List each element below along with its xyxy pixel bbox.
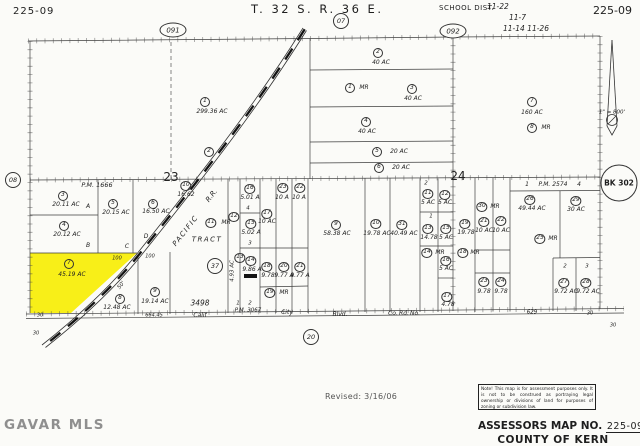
parcel-number: 21 bbox=[478, 217, 489, 227]
parcel-acreage: 9.77 A bbox=[290, 273, 309, 279]
parcel-acreage: 5 AC bbox=[439, 266, 453, 272]
parcel-acreage: 20.15 AC bbox=[102, 210, 129, 216]
parcel-number: 24 bbox=[495, 277, 506, 287]
watermark: GAVAR MLS bbox=[4, 417, 105, 433]
school-district-value: 11-14 11-26 bbox=[503, 24, 549, 33]
parcel-number: 10 bbox=[180, 181, 191, 191]
parcel-number: 6 bbox=[374, 163, 384, 173]
parcel-number: 9 bbox=[150, 287, 160, 297]
map-text: 3 bbox=[585, 264, 589, 270]
parcel-acreage: 9.86 A bbox=[242, 267, 261, 273]
parcel-acreage: 20.11 AC bbox=[52, 202, 79, 208]
parcel-acreage: 14.78 bbox=[420, 235, 437, 241]
parcel-number: 4 bbox=[59, 221, 69, 231]
parcel-acreage: 160 AC bbox=[521, 110, 543, 116]
parcel-acreage: 19.78 AC bbox=[363, 231, 390, 237]
parcel-number: 7 bbox=[527, 97, 537, 107]
map-number-top-left: 225-09 bbox=[13, 6, 54, 17]
parcel-acreage: MR bbox=[470, 250, 479, 256]
parcel-number: 23 bbox=[478, 277, 489, 287]
county-title: COUNTY OF KERN bbox=[478, 434, 628, 446]
parcel-acreage: 9.72 AC bbox=[554, 289, 578, 295]
parcel-acreage: MR bbox=[279, 290, 288, 296]
scale-note: 1" = 800' bbox=[599, 110, 625, 116]
parcel-number: 21 bbox=[294, 262, 305, 272]
revised-date: Revised: 3/16/06 bbox=[325, 392, 397, 401]
map-text: 30 bbox=[587, 312, 593, 317]
parcel-number: 29 bbox=[570, 196, 581, 206]
parcel-number: 14 bbox=[421, 248, 432, 258]
parcel-acreage: MR bbox=[359, 85, 368, 91]
section-number: 23 bbox=[163, 171, 178, 183]
parcel-number: 14 bbox=[245, 256, 256, 266]
road-label: Blvd. bbox=[332, 312, 347, 318]
parcel-number: 26 bbox=[524, 195, 535, 205]
parcel-number: 8 bbox=[527, 123, 537, 133]
map-labels-layer: 1299.36 AC2240 AC1MR340 AC440 AC520 AC62… bbox=[0, 0, 640, 446]
reference-circle: 08 bbox=[5, 172, 21, 188]
parcel-number: 4 bbox=[361, 117, 371, 127]
parcel-number: 13 bbox=[422, 224, 433, 234]
parcel-number: 19 bbox=[264, 288, 275, 298]
parcel-acreage: 20.12 AC bbox=[53, 232, 80, 238]
parcel-acreage: 20 AC bbox=[390, 149, 408, 155]
map-text: 50' bbox=[117, 281, 127, 291]
reference-circle: BK 302 bbox=[601, 165, 638, 202]
parcel-acreage: MR bbox=[435, 250, 444, 256]
parcel-acreage: 19.78 bbox=[457, 230, 474, 236]
parcel-number: 23 bbox=[277, 183, 288, 193]
map-text: 4.93 AC bbox=[230, 260, 236, 282]
parcel-acreage: 10 A bbox=[275, 195, 289, 201]
parcel-acreage: 10 AC bbox=[258, 219, 276, 225]
map-text: A bbox=[86, 204, 90, 210]
parcel-number: 2 bbox=[373, 48, 383, 58]
map-text: P.M. 3067 bbox=[235, 308, 262, 314]
map-text: 3 bbox=[248, 241, 252, 247]
parcel-acreage: MR bbox=[541, 125, 550, 131]
road-label: No. bbox=[410, 311, 420, 317]
parcel-acreage: MR bbox=[490, 204, 499, 210]
map-number-top-right: 225-09 bbox=[593, 4, 632, 17]
parcel-acreage: MR bbox=[548, 236, 557, 242]
parcel-number: 3 bbox=[58, 191, 68, 201]
map-text: 664.45 bbox=[145, 314, 163, 319]
parcel-acreage: 58.38 AC bbox=[323, 231, 350, 237]
assessors-map-label: ASSESSORS MAP NO. bbox=[478, 420, 602, 432]
parcel-acreage: 10 A bbox=[292, 195, 306, 201]
parcel-acreage: 20 AC bbox=[392, 165, 410, 171]
map-text: 2 bbox=[248, 301, 252, 307]
map-text: C bbox=[125, 244, 129, 250]
parcel-number: 22 bbox=[495, 216, 506, 226]
map-text: 1 bbox=[429, 214, 433, 220]
parcel-acreage: 12.48 AC bbox=[103, 305, 130, 311]
parcel-acreage: 16.62 bbox=[177, 192, 194, 198]
parcel-acreage: 10 AC bbox=[492, 228, 510, 234]
map-text: 100 bbox=[112, 257, 122, 262]
map-text: 30 bbox=[33, 332, 39, 337]
map-text: 2 bbox=[563, 264, 567, 270]
parcel-number: 7 bbox=[64, 259, 74, 269]
map-text: 629 bbox=[527, 310, 538, 316]
parcel-acreage: 5.01 A bbox=[240, 195, 259, 201]
assessor-map-page: 1299.36 AC2240 AC1MR340 AC440 AC520 AC62… bbox=[0, 0, 640, 446]
map-text: 30 bbox=[610, 324, 616, 329]
parcel-acreage: 299.36 AC bbox=[196, 109, 227, 115]
map-text: 100 bbox=[145, 255, 155, 260]
assessment-note: Note! This map is for assessment purpose… bbox=[478, 384, 596, 410]
parcel-number: 10 bbox=[370, 219, 381, 229]
parcel-number: 1 bbox=[345, 83, 355, 93]
parcel-number: 18 bbox=[457, 248, 468, 258]
assessors-map-number: 225-09 bbox=[606, 421, 640, 433]
parcel-number: 12 bbox=[228, 212, 239, 222]
parcel-number: 5 bbox=[108, 199, 118, 209]
parcel-acreage: 40 AC bbox=[358, 129, 376, 135]
parcel-acreage: 4.78 bbox=[441, 302, 454, 308]
parcel-number: 5 bbox=[372, 147, 382, 157]
reference-circle: 091 bbox=[160, 23, 187, 38]
parcel-acreage: 16.50 AC bbox=[142, 209, 169, 215]
parcel-acreage: 5 AC bbox=[438, 200, 452, 206]
parcel-number: 20 bbox=[278, 262, 289, 272]
parcel-number: 25 bbox=[534, 234, 545, 244]
parcel-number: 8 bbox=[115, 294, 125, 304]
map-text: 30 bbox=[37, 314, 43, 319]
parcel-number: 11 bbox=[422, 189, 433, 199]
parcel-number: 16 bbox=[244, 184, 255, 194]
parcel-number: 22 bbox=[294, 183, 305, 193]
parcel-acreage: MR bbox=[221, 220, 230, 226]
parcel-number: 1 bbox=[200, 97, 210, 107]
parcel-acreage: 40.49 AC bbox=[390, 231, 417, 237]
parcel-number: 15 bbox=[440, 224, 451, 234]
parcel-acreage: 45.19 AC bbox=[58, 272, 85, 278]
map-text: TRACT bbox=[192, 237, 223, 244]
parcel-number: 18 bbox=[261, 262, 272, 272]
map-text: 1 bbox=[236, 301, 240, 307]
map-text: B bbox=[86, 243, 90, 249]
map-text: P.M. 2574 bbox=[539, 182, 568, 188]
parcel-acreage: 40 AC bbox=[372, 60, 390, 66]
railroad-label: R.R. bbox=[205, 188, 219, 203]
assessors-map-title: ASSESSORS MAP NO. 225-09 bbox=[478, 420, 640, 432]
reference-circle: 37 bbox=[207, 258, 223, 274]
parcel-acreage: 30 AC bbox=[567, 207, 585, 213]
township-range-title: T. 32 S. R. 36 E. bbox=[251, 2, 383, 16]
parcel-number: 3 bbox=[407, 84, 417, 94]
school-district-value: 11-22 bbox=[487, 2, 509, 11]
parcel-number: 2 bbox=[204, 147, 214, 157]
parcel-acreage: 5 AC bbox=[421, 200, 435, 206]
parcel-number: 9 bbox=[331, 220, 341, 230]
parcel-acreage: 19.14 AC bbox=[141, 299, 168, 305]
map-text: 4 bbox=[577, 182, 581, 188]
road-label: Calif bbox=[193, 313, 206, 319]
parcel-acreage: 9.72 AC bbox=[576, 289, 600, 295]
road-label: Co. bbox=[388, 311, 398, 317]
parcel-number: 28 bbox=[580, 278, 591, 288]
parcel-number: 15 bbox=[245, 219, 256, 229]
parcel-acreage: 5.02 A bbox=[241, 230, 260, 236]
map-text: 3498 bbox=[190, 299, 209, 307]
map-text: 2 bbox=[424, 181, 428, 187]
road-label: Rd. bbox=[399, 311, 409, 317]
parcel-number: 11 bbox=[205, 218, 216, 228]
parcel-acreage: 49.44 AC bbox=[518, 206, 545, 212]
parcel-acreage: 40 AC bbox=[404, 96, 422, 102]
parcel-number: 19 bbox=[459, 219, 470, 229]
road-label: City bbox=[281, 310, 293, 316]
reference-circle: 092 bbox=[440, 24, 467, 39]
map-text: P.M. 1666 bbox=[81, 182, 112, 189]
map-text: D bbox=[144, 234, 149, 240]
parcel-acreage: 9.78 bbox=[494, 289, 507, 295]
parcel-acreage: 9.78 bbox=[477, 289, 490, 295]
parcel-number: 27 bbox=[558, 278, 569, 288]
reference-circle: 20 bbox=[303, 329, 319, 345]
map-text: 4 bbox=[246, 206, 250, 212]
map-text: 1 bbox=[525, 182, 529, 188]
parcel-acreage: 10 AC bbox=[475, 228, 493, 234]
section-number: 24 bbox=[450, 170, 465, 182]
parcel-number: 30 bbox=[476, 202, 487, 212]
parcel-number: 31 bbox=[396, 220, 407, 230]
school-district-value: 11-7 bbox=[509, 13, 526, 22]
parcel-acreage: 5 AC bbox=[439, 235, 453, 241]
parcel-acreage: 9.78 bbox=[261, 273, 274, 279]
parcel-number: 13 bbox=[234, 253, 245, 263]
